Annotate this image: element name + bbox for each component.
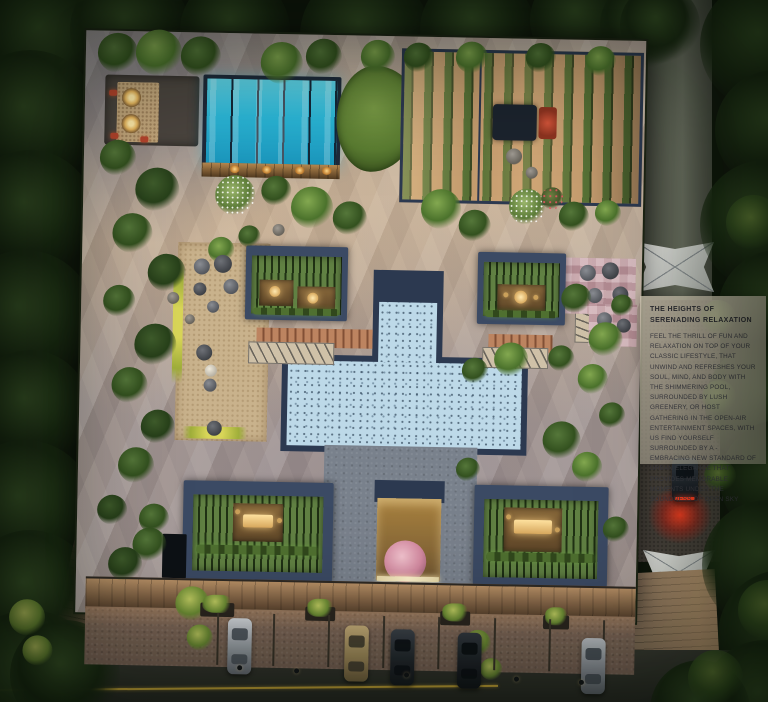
chair [277,518,282,523]
chair [503,292,508,297]
pergola-daybed [492,104,537,141]
pavilion-planter [485,310,557,318]
chair [555,527,560,532]
red-seat [109,90,117,96]
car-rear-window [585,674,601,684]
tree [9,599,46,636]
panel-body: FEEL THE THRILL OF FUN AND RELAXATION ON… [650,332,756,505]
lit-forest-tree [688,650,743,702]
parked-car [390,629,415,685]
car-windshield [585,648,601,660]
red-seat [110,133,118,139]
bollard-light [579,680,584,685]
panel-title: THE HEIGHTS OF SERENADING RELAXATION [650,305,756,326]
deck-light [322,167,332,175]
chair [506,514,511,519]
planter-plants [442,603,468,621]
trellis-walk [248,341,334,365]
lit-dining-table [514,520,552,535]
pergola-red-lounger [538,107,557,139]
bollard-light [404,672,409,677]
tree [22,635,53,666]
bollard-light [514,677,519,682]
parked-car [581,638,606,694]
tree [480,658,502,680]
chair [533,295,538,300]
deck-light [295,166,305,174]
lit-dining-table [243,514,273,528]
red-seat [140,136,148,142]
chair [235,509,240,514]
deck-light [230,165,240,173]
bollard-light [294,668,299,673]
car-windshield [395,639,411,651]
car-windshield [461,643,477,655]
parked-car [457,632,482,688]
bollard-light [237,665,242,670]
marketing-text-panel: THE HEIGHTS OF SERENADING RELAXATION FEE… [640,296,766,464]
deck-light [262,166,272,174]
swimming-pool [206,79,338,165]
car-rear-window [231,654,247,664]
car-windshield [349,635,365,647]
car-rear-window [461,669,477,679]
aerial-site-render: THE HEIGHTS OF SERENADING RELAXATION FEE… [0,0,768,702]
car-rear-window [348,661,364,671]
car-windshield [232,628,248,640]
planter-plants [202,595,232,614]
parked-car [344,625,369,681]
